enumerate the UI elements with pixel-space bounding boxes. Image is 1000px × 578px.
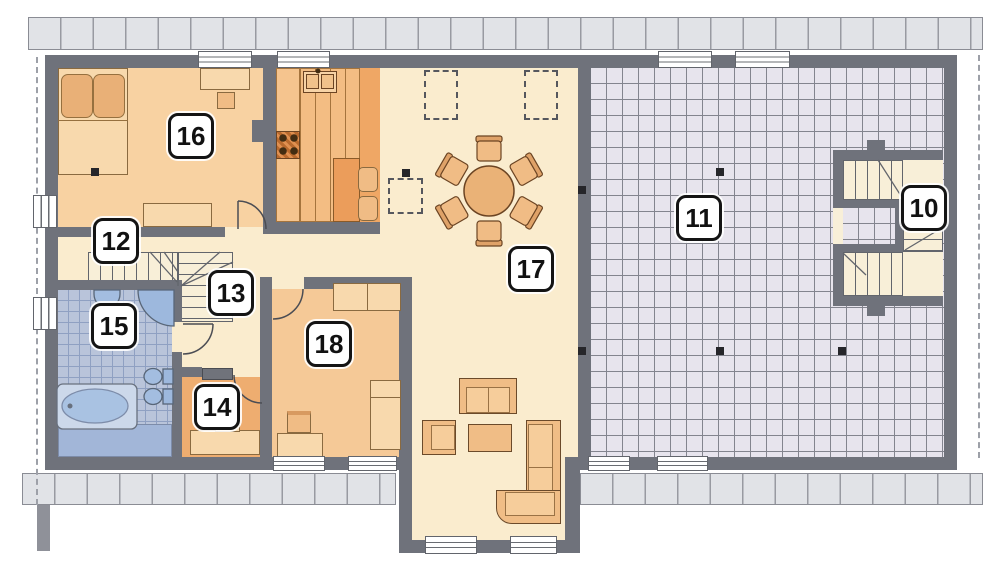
window (657, 456, 708, 471)
room-label-17: 17 (508, 246, 554, 292)
column-marker (402, 169, 410, 177)
kitchen-sink-bowl (306, 74, 319, 89)
window (510, 536, 557, 554)
wall (578, 457, 957, 470)
room-label-18: 18 (306, 321, 352, 367)
stairwell-wall (833, 200, 903, 208)
column-marker (578, 347, 586, 355)
bay-wall-left (399, 457, 412, 553)
shelf (202, 368, 233, 380)
stairs10-lower-flight (843, 252, 903, 296)
column-outline (388, 178, 423, 214)
wall-kitchen-left (263, 68, 276, 234)
roof-overhang-top (28, 17, 983, 50)
window (658, 51, 712, 68)
column-marker (91, 168, 99, 176)
room-label-15: 15 (91, 303, 137, 349)
roof-edge-dashed-left (36, 57, 38, 505)
kitchen-island (333, 158, 360, 222)
wall-bath-right (172, 280, 182, 322)
desk-chair (287, 411, 311, 433)
wardrobe-divider (367, 284, 368, 310)
column-marker (838, 347, 846, 355)
roof-overhang-bottom-right (580, 473, 983, 505)
kitchen-sink-bowl (321, 74, 334, 89)
window (33, 297, 57, 330)
window (425, 536, 477, 554)
pillow (61, 74, 93, 118)
roof-overhang-bottom-left (22, 473, 396, 505)
window (33, 195, 57, 228)
wall-bedroom18-left (260, 277, 272, 457)
armchair (422, 420, 456, 455)
bed-pillow-line (371, 397, 400, 398)
wall-living-attic (578, 68, 591, 457)
bench (190, 430, 260, 455)
stairwell-wall (833, 244, 903, 252)
column-marker (578, 186, 586, 194)
attic-grid-patch (843, 208, 895, 244)
bar-stool (358, 167, 378, 192)
pillow (93, 74, 125, 118)
bathroom-platform (58, 424, 172, 457)
bar-stool (358, 196, 378, 221)
skylight-outline (524, 70, 558, 120)
roof-edge-dashed-right (978, 55, 980, 458)
blanket-line (58, 120, 128, 121)
wall (45, 55, 58, 470)
wall-kitchen-bottom (263, 222, 380, 234)
coffee-table (468, 424, 512, 452)
room-label-14: 14 (194, 384, 240, 430)
room-label-12: 12 (93, 218, 139, 264)
wall-wardrobe14-stub (182, 367, 202, 377)
stairwell-wall (833, 150, 943, 160)
stairs10-upper-flight (843, 160, 903, 200)
window (588, 456, 630, 471)
stairwell-wall-nub (867, 306, 885, 316)
wall-bath-top (45, 280, 182, 290)
wall (45, 55, 957, 68)
room-label-16: 16 (168, 113, 214, 159)
stairs10-mid-flight (903, 228, 943, 252)
dresser (200, 68, 250, 90)
window (735, 51, 790, 68)
two-seat-sofa (459, 378, 517, 414)
window (198, 51, 252, 68)
floor-plan: 10 11 12 13 14 15 16 17 18 (0, 0, 1000, 578)
stairwell-wall-nub (867, 140, 885, 150)
stairwell-wall (833, 296, 943, 306)
window (348, 456, 397, 471)
chimney (252, 120, 263, 142)
room-label-13: 13 (208, 270, 254, 316)
bay-wall-right (565, 457, 580, 553)
sideboard (143, 203, 212, 227)
stove (276, 131, 300, 159)
room-label-11: 11 (676, 195, 722, 241)
window (277, 51, 330, 68)
wall (944, 55, 957, 470)
window (273, 456, 325, 471)
room-label-10: 10 (901, 185, 947, 231)
roof-edge-stub (37, 505, 50, 551)
corner-sofa-short (496, 490, 561, 524)
stool (217, 92, 235, 109)
single-bed (370, 380, 401, 450)
wall-bath-right (172, 352, 182, 457)
column-marker (716, 347, 724, 355)
skylight-outline (424, 70, 458, 120)
desk (277, 433, 323, 457)
column-marker (716, 168, 724, 176)
